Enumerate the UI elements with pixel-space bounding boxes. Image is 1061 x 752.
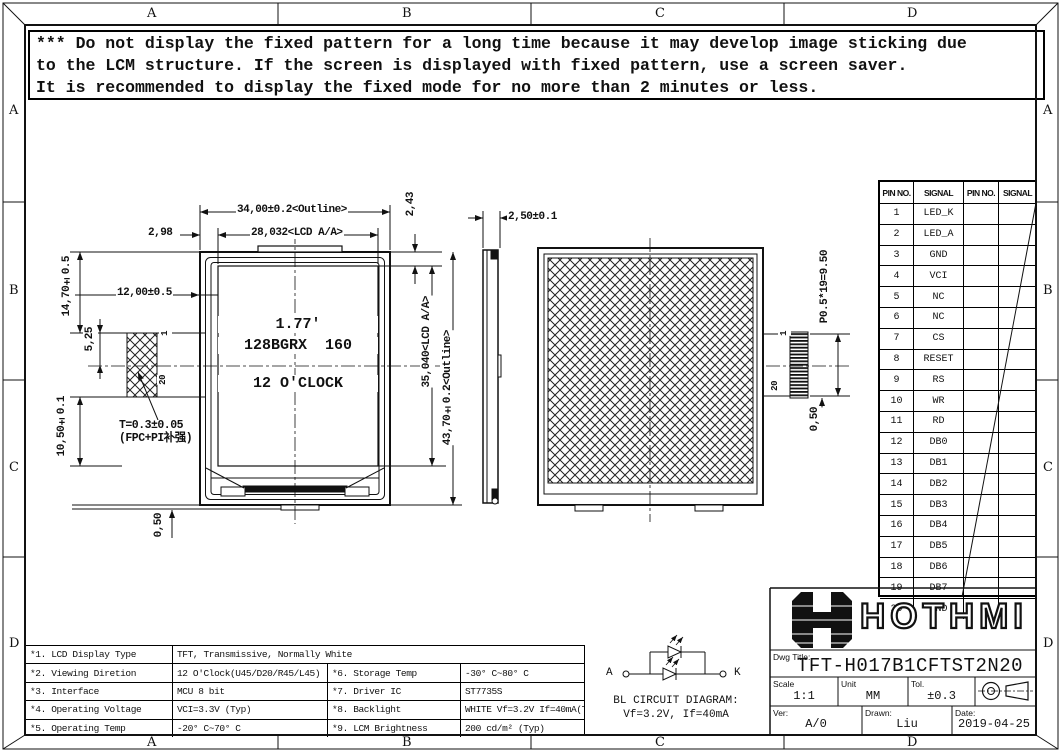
connector-pin20-label: 20 bbox=[769, 381, 782, 391]
date-value: 2019-04-25 bbox=[952, 717, 1036, 731]
pin-signal: LED_A bbox=[914, 225, 964, 245]
pin-signal-empty bbox=[999, 287, 1036, 307]
pin-no-empty bbox=[964, 225, 999, 245]
spec-label: *8. Backlight bbox=[328, 701, 461, 718]
pin-table-header: PIN NO. SIGNAL PIN NO. SIGNAL bbox=[880, 182, 1036, 203]
grid-row-a-right: A bbox=[1043, 103, 1052, 118]
pin-no-empty bbox=[964, 516, 999, 536]
pin-no: 1 bbox=[880, 204, 914, 224]
spec-label: *1. LCD Display Type bbox=[26, 646, 173, 663]
unit-label: Unit bbox=[841, 679, 856, 689]
pin-row: 1LED_K bbox=[880, 203, 1036, 224]
version-value: A/0 bbox=[770, 717, 862, 731]
pin-no: 15 bbox=[880, 495, 914, 515]
pin-no-empty bbox=[964, 370, 999, 390]
bl-anode-label: A bbox=[606, 667, 613, 679]
tolerance-value: ±0.3 bbox=[908, 689, 975, 703]
spec-value: 12 O'Clock(U45/D20/R45/L45) bbox=[173, 664, 328, 681]
spec-row: *5. Operating Temp -20° C~70° C *9. LCM … bbox=[26, 719, 584, 737]
bl-circuit-title: BL CIRCUIT DIAGRAM: bbox=[596, 695, 756, 707]
pin-no: 8 bbox=[880, 350, 914, 370]
dim-top-gap: 2,43 bbox=[404, 192, 419, 216]
signal-header-2: SIGNAL bbox=[999, 182, 1036, 203]
spec-value: -30° C~80° C bbox=[461, 664, 584, 681]
pin-no: 14 bbox=[880, 474, 914, 494]
pin-no-empty bbox=[964, 495, 999, 515]
grid-col-a-bottom: A bbox=[147, 735, 156, 750]
pin-row: 4VCI bbox=[880, 265, 1036, 286]
pin-signal-empty bbox=[999, 558, 1036, 578]
pin-row: 8RESET bbox=[880, 349, 1036, 370]
pin-signal: DB4 bbox=[914, 516, 964, 536]
pin-signal-empty bbox=[999, 204, 1036, 224]
spec-value: TFT, Transmissive, Normally White bbox=[173, 646, 584, 663]
spec-label: *4. Operating Voltage bbox=[26, 701, 173, 718]
fpc-thickness-note-line1: T=0.3±0.05 bbox=[118, 420, 184, 432]
pin-signal-empty bbox=[999, 350, 1036, 370]
pin-no: 3 bbox=[880, 246, 914, 266]
pin-no: 11 bbox=[880, 412, 914, 432]
dim-fpc-offset: 12,00±0.5 bbox=[116, 287, 173, 299]
pin-signal-empty bbox=[999, 495, 1036, 515]
signal-header: SIGNAL bbox=[914, 182, 964, 203]
spec-value: ST7735S bbox=[461, 683, 584, 700]
spec-row: *1. LCD Display Type TFT, Transmissive, … bbox=[26, 646, 584, 663]
scale-value: 1:1 bbox=[770, 689, 838, 703]
dim-fpc-bottom: 10,50±0.1 bbox=[55, 396, 70, 456]
pin-signal-empty bbox=[999, 246, 1036, 266]
spec-value: -20° C~70° C bbox=[173, 720, 328, 737]
pin-no: 17 bbox=[880, 537, 914, 557]
spec-label: *2. Viewing Diretion bbox=[26, 664, 173, 681]
pin-row: 17DB5 bbox=[880, 536, 1036, 557]
pin-no: 9 bbox=[880, 370, 914, 390]
tolerance-label: Tol. bbox=[911, 679, 924, 689]
pin-signal: RS bbox=[914, 370, 964, 390]
lcd-resolution-label: 128BGRX 160 bbox=[218, 337, 378, 354]
lcd-viewing-direction-label: 12 O'CLOCK bbox=[218, 375, 378, 392]
pin-row: 2LED_A bbox=[880, 224, 1036, 245]
pin-no: 7 bbox=[880, 329, 914, 349]
grid-col-a-top: A bbox=[147, 6, 156, 21]
grid-row-d-right: D bbox=[1043, 636, 1053, 651]
pin-row: 3GND bbox=[880, 245, 1036, 266]
spec-value: WHITE Vf=3.2V If=40mA(Typ) bbox=[461, 701, 584, 718]
pin-no-header-2: PIN NO. bbox=[964, 182, 999, 203]
dim-outline-height: 43,70±0.2<Outline> bbox=[441, 330, 456, 445]
pin-signal: DB6 bbox=[914, 558, 964, 578]
spec-value: MCU 8 bit bbox=[173, 683, 328, 700]
pin-signal: VCI bbox=[914, 266, 964, 286]
pin-signal: NC bbox=[914, 308, 964, 328]
pin-signal: RESET bbox=[914, 350, 964, 370]
dim-connector-pin-gap: 0,50 bbox=[808, 407, 823, 431]
grid-col-b-top: B bbox=[402, 6, 412, 21]
spec-label: *7. Driver IC bbox=[328, 683, 461, 700]
pin-signal: RD bbox=[914, 412, 964, 432]
dim-fpc-top: 14,70±0.5 bbox=[60, 256, 75, 316]
pin-signal: DB0 bbox=[914, 433, 964, 453]
pin-signal: LED_K bbox=[914, 204, 964, 224]
pin-no-empty bbox=[964, 246, 999, 266]
pin-signal-empty bbox=[999, 370, 1036, 390]
pin-signal: DB7 bbox=[914, 578, 964, 598]
specification-table: *1. LCD Display Type TFT, Transmissive, … bbox=[25, 645, 585, 735]
datasheet-drawing-page: A B C D A B C D A B C D A B C D *** Do n… bbox=[0, 0, 1061, 752]
pin-no: 13 bbox=[880, 454, 914, 474]
pin-no: 16 bbox=[880, 516, 914, 536]
pin-signal: CS bbox=[914, 329, 964, 349]
grid-row-a-left: A bbox=[9, 103, 18, 118]
spec-row: *4. Operating Voltage VCI=3.3V (Typ) *8.… bbox=[26, 700, 584, 718]
pin-signal-empty bbox=[999, 225, 1036, 245]
pin-signal: GND bbox=[914, 246, 964, 266]
pin-signal-empty bbox=[999, 578, 1036, 598]
fpc-thickness-note-line2: (FPC+PI补强) bbox=[118, 433, 193, 445]
dim-bottom-gap: 0,50 bbox=[152, 513, 167, 537]
pin-signal: DB5 bbox=[914, 537, 964, 557]
pin-row: 7CS bbox=[880, 328, 1036, 349]
pin-no-empty bbox=[964, 474, 999, 494]
pin-no-empty bbox=[964, 266, 999, 286]
spec-label: *3. Interface bbox=[26, 683, 173, 700]
spec-row: *2. Viewing Diretion 12 O'Clock(U45/D20/… bbox=[26, 663, 584, 681]
pin-row: 13DB1 bbox=[880, 453, 1036, 474]
drawing-title: TFT-H017B1CFTST2N20 bbox=[792, 655, 1028, 677]
pin-no-empty bbox=[964, 308, 999, 328]
spec-row: *3. Interface MCU 8 bit *7. Driver IC ST… bbox=[26, 682, 584, 700]
pin-no-empty bbox=[964, 578, 999, 598]
pin-signal: DB2 bbox=[914, 474, 964, 494]
dim-left-gap: 2,98 bbox=[147, 227, 173, 239]
unit-value: MM bbox=[838, 689, 908, 703]
pin-no-empty bbox=[964, 391, 999, 411]
pin-no: 10 bbox=[880, 391, 914, 411]
bl-cathode-label: K bbox=[734, 667, 741, 679]
spec-value: VCI=3.3V (Typ) bbox=[173, 701, 328, 718]
grid-row-c-right: C bbox=[1043, 460, 1053, 475]
pin-signal-empty bbox=[999, 391, 1036, 411]
dim-thickness: 2,50±0.1 bbox=[507, 211, 558, 223]
spec-label: *9. LCM Brightness bbox=[328, 720, 461, 737]
pin-row: 15DB3 bbox=[880, 494, 1036, 515]
hothmi-logo-icon bbox=[792, 592, 852, 648]
pin-assignment-table: PIN NO. SIGNAL PIN NO. SIGNAL 1LED_K 2LE… bbox=[878, 180, 1036, 597]
pin-signal: WR bbox=[914, 391, 964, 411]
warning-line-1: *** Do not display the fixed pattern for… bbox=[36, 33, 1037, 55]
pin-no-empty bbox=[964, 433, 999, 453]
pin-no-empty bbox=[964, 454, 999, 474]
pin-signal-empty bbox=[999, 266, 1036, 286]
pin-signal-empty bbox=[999, 474, 1036, 494]
connector-pin1-label: 1 bbox=[778, 331, 791, 336]
pin-no: 5 bbox=[880, 287, 914, 307]
pin-no-empty bbox=[964, 350, 999, 370]
pin-no-header: PIN NO. bbox=[880, 182, 914, 203]
pin-signal: DB1 bbox=[914, 454, 964, 474]
pin-signal-empty bbox=[999, 537, 1036, 557]
pin-no-empty bbox=[964, 412, 999, 432]
pin-no: 4 bbox=[880, 266, 914, 286]
pin-row: 9RS bbox=[880, 369, 1036, 390]
drawn-by-value: Liu bbox=[862, 717, 952, 731]
pin-no-empty bbox=[964, 329, 999, 349]
grid-col-c-top: C bbox=[655, 6, 665, 21]
grid-row-c-left: C bbox=[9, 460, 19, 475]
pin-row: 12DB0 bbox=[880, 432, 1036, 453]
pin-row: 11RD bbox=[880, 411, 1036, 432]
grid-row-b-right: B bbox=[1043, 283, 1053, 298]
pin-row: 16DB4 bbox=[880, 515, 1036, 536]
pin-no-empty bbox=[964, 204, 999, 224]
grid-col-d-top: D bbox=[907, 6, 917, 21]
pin-row: 6NC bbox=[880, 307, 1036, 328]
pin-signal: NC bbox=[914, 287, 964, 307]
bl-circuit-subtitle: Vf=3.2V, If=40mA bbox=[596, 709, 756, 721]
pin-signal-empty bbox=[999, 412, 1036, 432]
pin-no-empty bbox=[964, 537, 999, 557]
hothmi-logo-text: HOTHMI bbox=[860, 597, 1028, 637]
dim-active-area-width: 28,032<LCD A/A> bbox=[250, 227, 344, 239]
warning-line-2: to the LCM structure. If the screen is d… bbox=[36, 55, 1037, 77]
pin-signal: DB3 bbox=[914, 495, 964, 515]
pin-no-empty bbox=[964, 287, 999, 307]
warning-line-3: It is recommended to display the fixed m… bbox=[36, 77, 1037, 99]
grid-col-b-bottom: B bbox=[402, 735, 412, 750]
pin-row: 19DB7 bbox=[880, 577, 1036, 598]
pin-signal-empty bbox=[999, 516, 1036, 536]
pin-no-empty bbox=[964, 558, 999, 578]
pin-row: 14DB2 bbox=[880, 473, 1036, 494]
grid-row-d-left: D bbox=[9, 636, 19, 651]
pin-no: 18 bbox=[880, 558, 914, 578]
dim-fpc-mid: 5,25 bbox=[83, 327, 98, 351]
grid-row-b-left: B bbox=[9, 283, 19, 298]
fpc-pin1-label: 1 bbox=[159, 331, 172, 336]
grid-col-d-bottom: D bbox=[907, 735, 917, 750]
image-sticking-warning: *** Do not display the fixed pattern for… bbox=[28, 30, 1045, 100]
fpc-pin20-label: 20 bbox=[157, 375, 170, 385]
spec-value: 200 cd/m² (Typ) bbox=[461, 720, 584, 737]
pin-signal-empty bbox=[999, 308, 1036, 328]
lcd-size-label: 1.77' bbox=[218, 316, 378, 333]
dim-connector-pitch: P0.5*19=9.50 bbox=[818, 250, 833, 323]
pin-row: 10WR bbox=[880, 390, 1036, 411]
grid-col-c-bottom: C bbox=[655, 735, 665, 750]
pin-signal-empty bbox=[999, 433, 1036, 453]
pin-signal-empty bbox=[999, 454, 1036, 474]
pin-no: 12 bbox=[880, 433, 914, 453]
pin-no: 19 bbox=[880, 578, 914, 598]
pin-no: 2 bbox=[880, 225, 914, 245]
pin-no: 6 bbox=[880, 308, 914, 328]
pin-row: 5NC bbox=[880, 286, 1036, 307]
dim-active-area-height: 35,040<LCD A/A> bbox=[420, 296, 435, 388]
pin-row: 18DB6 bbox=[880, 557, 1036, 578]
dim-outline-width: 34,00±0.2<Outline> bbox=[236, 204, 348, 216]
scale-label: Scale bbox=[773, 679, 794, 689]
pin-signal-empty bbox=[999, 329, 1036, 349]
spec-label: *6. Storage Temp bbox=[328, 664, 461, 681]
